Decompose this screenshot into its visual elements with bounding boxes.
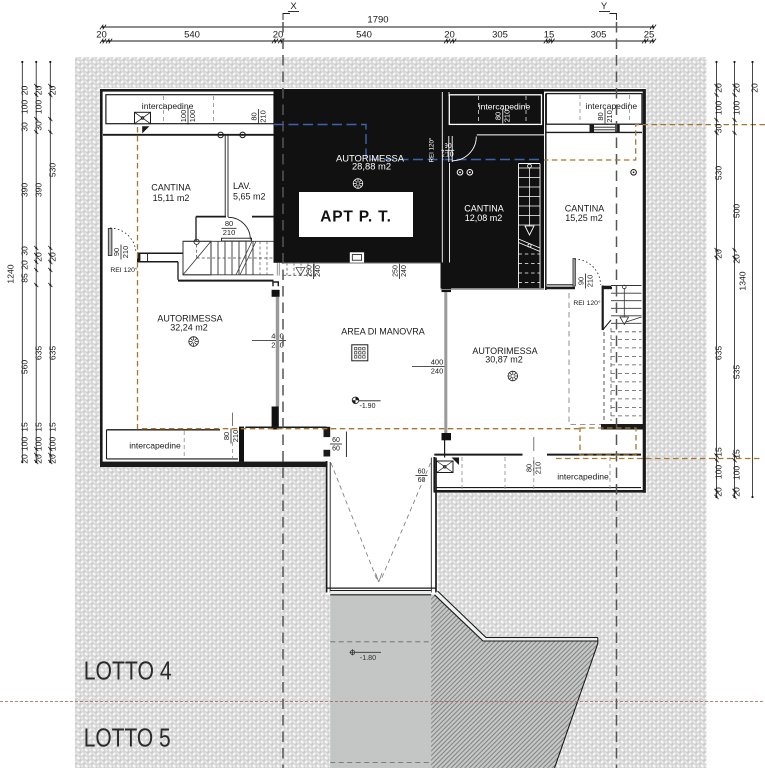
svg-text:20: 20 (750, 83, 760, 93)
svg-text:CANTINA: CANTINA (151, 183, 191, 193)
svg-text:REI 120°: REI 120° (110, 266, 138, 274)
svg-text:305: 305 (492, 30, 508, 41)
svg-text:20: 20 (96, 30, 107, 41)
svg-text:20: 20 (34, 454, 44, 464)
svg-text:80: 80 (249, 112, 258, 120)
svg-text:15: 15 (714, 447, 724, 457)
svg-text:15,25 m2: 15,25 m2 (565, 213, 603, 223)
svg-text:100: 100 (732, 101, 742, 116)
svg-text:80: 80 (494, 112, 503, 120)
svg-text:100: 100 (714, 101, 724, 116)
svg-text:28,88 m2: 28,88 m2 (352, 161, 391, 172)
svg-text:80: 80 (222, 432, 231, 440)
svg-text:X: X (290, 1, 297, 12)
svg-text:15: 15 (34, 422, 44, 432)
svg-text:530: 530 (714, 166, 724, 181)
svg-text:60: 60 (332, 445, 340, 452)
svg-text:85: 85 (20, 273, 30, 283)
svg-text:5,65 m2: 5,65 m2 (233, 192, 266, 202)
svg-text:80: 80 (596, 112, 605, 120)
svg-text:25: 25 (644, 30, 655, 41)
svg-text:305: 305 (591, 30, 607, 41)
svg-text:CANTINA: CANTINA (464, 204, 504, 214)
svg-text:30,87 m2: 30,87 m2 (485, 355, 523, 365)
svg-text:20: 20 (20, 260, 30, 270)
svg-text:Y: Y (601, 1, 608, 12)
svg-text:60: 60 (418, 468, 426, 475)
svg-text:100: 100 (48, 437, 58, 452)
svg-text:90: 90 (576, 277, 585, 285)
svg-text:535: 535 (732, 365, 742, 380)
svg-text:20: 20 (20, 454, 30, 464)
svg-text:AREA DI MANOVRA: AREA DI MANOVRA (341, 327, 425, 337)
svg-text:90: 90 (444, 143, 452, 150)
svg-text:30: 30 (34, 121, 44, 131)
svg-text:20: 20 (48, 454, 58, 464)
svg-text:30: 30 (20, 246, 30, 256)
svg-text:-1.80: -1.80 (360, 653, 376, 662)
svg-text:20: 20 (20, 86, 30, 96)
svg-text:15: 15 (544, 30, 555, 41)
svg-text:540: 540 (356, 30, 372, 41)
svg-text:CANTINA: CANTINA (565, 204, 605, 214)
svg-text:210: 210 (231, 430, 240, 443)
svg-text:635: 635 (48, 346, 58, 361)
svg-text:20: 20 (273, 30, 284, 41)
svg-text:REI 120°: REI 120° (429, 137, 436, 162)
svg-text:240: 240 (315, 265, 322, 277)
svg-text:390: 390 (34, 183, 44, 198)
svg-text:210: 210 (258, 110, 267, 123)
svg-text:30: 30 (20, 122, 30, 132)
svg-text:100: 100 (714, 465, 724, 480)
svg-text:560: 560 (20, 360, 30, 375)
svg-text:500: 500 (732, 204, 742, 219)
svg-text:80: 80 (225, 219, 233, 228)
svg-text:390: 390 (20, 183, 30, 198)
svg-text:32,24 m2: 32,24 m2 (170, 323, 208, 333)
svg-text:LOTTO 5: LOTTO 5 (84, 725, 171, 753)
svg-text:20: 20 (444, 30, 455, 41)
svg-text:15,11 m2: 15,11 m2 (153, 193, 190, 203)
svg-text:60: 60 (332, 437, 340, 444)
svg-text:REI 120°: REI 120° (573, 299, 601, 307)
svg-text:15: 15 (48, 422, 58, 432)
svg-text:20: 20 (732, 254, 742, 264)
svg-text:210: 210 (503, 110, 512, 123)
svg-text:210: 210 (442, 152, 454, 159)
svg-text:210: 210 (585, 275, 594, 288)
svg-text:intercapedine: intercapedine (142, 101, 194, 111)
svg-text:100: 100 (732, 466, 742, 481)
svg-text:1340: 1340 (738, 271, 748, 290)
svg-text:250: 250 (392, 265, 399, 277)
svg-text:400: 400 (431, 357, 444, 366)
svg-text:-1.90: -1.90 (360, 403, 376, 410)
svg-text:240: 240 (401, 265, 408, 277)
svg-text:15: 15 (20, 422, 30, 432)
svg-text:20: 20 (714, 249, 724, 259)
svg-text:250: 250 (306, 265, 313, 277)
svg-text:1790: 1790 (367, 15, 388, 26)
svg-text:240: 240 (431, 366, 444, 375)
svg-text:APT P. T.: APT P. T. (320, 209, 392, 226)
svg-text:100: 100 (188, 110, 197, 123)
svg-text:210: 210 (223, 228, 236, 237)
svg-text:100: 100 (34, 437, 44, 452)
svg-text:100: 100 (20, 437, 30, 452)
svg-text:210: 210 (534, 462, 543, 475)
svg-text:635: 635 (714, 346, 724, 361)
svg-text:100: 100 (179, 110, 188, 123)
svg-text:635: 635 (34, 346, 44, 361)
svg-text:LOTTO 4: LOTTO 4 (84, 658, 172, 686)
svg-text:90: 90 (112, 248, 121, 256)
svg-text:intercapedine: intercapedine (129, 440, 181, 450)
svg-text:210: 210 (121, 246, 130, 259)
svg-text:12,08 m2: 12,08 m2 (465, 213, 503, 223)
svg-text:80: 80 (525, 464, 534, 472)
svg-text:100: 100 (34, 100, 44, 115)
svg-text:540: 540 (184, 30, 200, 41)
svg-text:100: 100 (20, 100, 30, 115)
svg-text:1240: 1240 (6, 264, 16, 283)
svg-text:210: 210 (605, 110, 614, 123)
svg-text:LAV.: LAV. (233, 181, 251, 191)
svg-text:intercapedine: intercapedine (557, 472, 609, 482)
svg-text:530: 530 (48, 163, 58, 178)
